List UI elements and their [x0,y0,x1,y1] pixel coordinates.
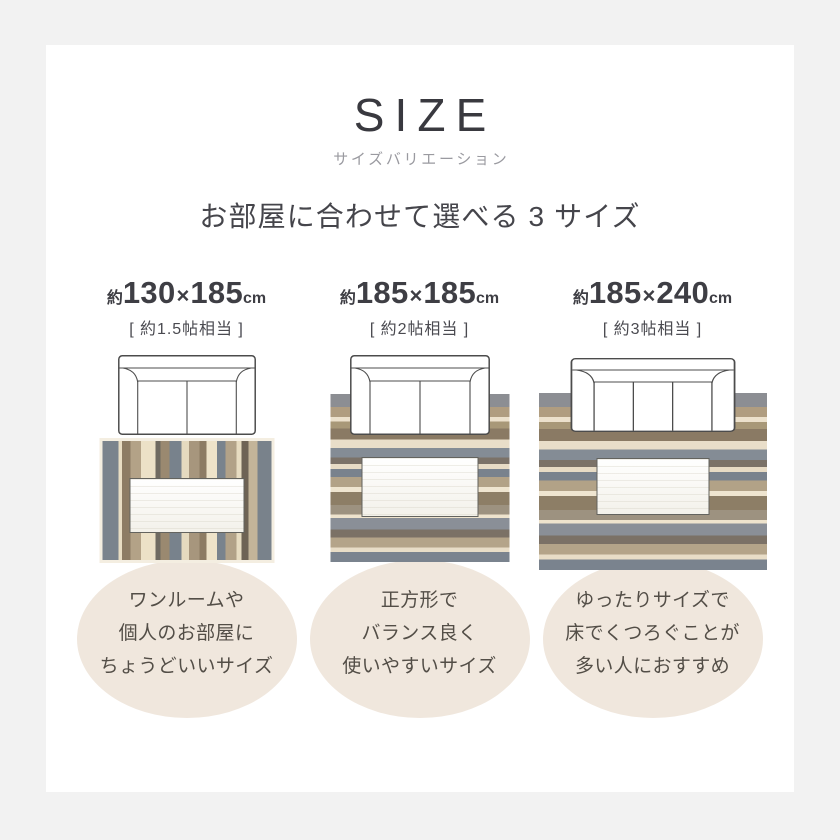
sofa-top-view-illustration [570,358,735,432]
tatami-equivalent-label: [ 約1.5帖相当 ] [70,315,303,339]
table-illustration [596,458,709,515]
size-width: 130 [123,275,176,310]
page-title: SIZE [46,92,794,138]
sofa-top-view-illustration [350,355,490,435]
tatami-equivalent-label: [ 約2帖相当 ] [303,315,536,339]
size-width: 185 [589,275,642,310]
description-circle: ゆったりサイズで 床でくつろぐことが 多い人におすすめ [543,560,763,718]
approx-prefix: 約 [573,290,589,307]
content-card: SIZE サイズバリエーション お部屋に合わせて選べる 3 サイズ 約130×1… [46,45,794,792]
size-unit: cm [476,290,499,307]
description-circle: ワンルームや 個人のお部屋に ちょうどいいサイズ [77,560,297,718]
approx-prefix: 約 [340,290,356,307]
size-depth: 185 [423,275,476,310]
table-illustration [361,457,478,517]
header: SIZE サイズバリエーション お部屋に合わせて選べる 3 サイズ [46,92,794,235]
multiply-sign: × [409,283,424,308]
size-unit: cm [709,290,732,307]
description-line: 個人のお部屋に [77,617,297,650]
section-heading: お部屋に合わせて選べる 3 サイズ [46,195,794,235]
description-line: ワンルームや [77,584,297,617]
multiply-sign: × [642,283,657,308]
sofa-top-view-illustration [118,355,256,435]
size-column-185x240: 約185×240cm [ 約3帖相当 ] ゆったりサイズで 床でくつろぐことが … [536,275,769,735]
description-line: 正方形で [310,584,530,617]
size-column-130x185: 約130×185cm [ 約1.5帖相当 ] ワンルームや 個人のお部屋に ちょ… [70,275,303,735]
size-dimensions-label: 約185×185cm [303,275,536,311]
description-line: 多い人におすすめ [543,650,763,683]
size-depth: 185 [190,275,243,310]
description-line: ゆったりサイズで [543,584,763,617]
size-column-185x185: 約185×185cm [ 約2帖相当 ] 正方形で バランス良く 使いやすいサイ… [303,275,536,735]
size-columns: 約130×185cm [ 約1.5帖相当 ] ワンルームや 個人のお部屋に ちょ… [70,275,769,735]
description-line: ちょうどいいサイズ [77,650,297,683]
size-width: 185 [356,275,409,310]
size-dimensions-label: 約130×185cm [70,275,303,311]
size-depth: 240 [656,275,709,310]
size-dimensions-label: 約185×240cm [536,275,769,311]
size-unit: cm [243,290,266,307]
page-subtitle: サイズバリエーション [46,148,794,169]
description-circle: 正方形で バランス良く 使いやすいサイズ [310,560,530,718]
description-line: 使いやすいサイズ [310,650,530,683]
multiply-sign: × [176,283,191,308]
description-line: 床でくつろぐことが [543,617,763,650]
approx-prefix: 約 [107,290,123,307]
table-illustration [129,478,244,533]
description-line: バランス良く [310,617,530,650]
tatami-equivalent-label: [ 約3帖相当 ] [536,315,769,339]
